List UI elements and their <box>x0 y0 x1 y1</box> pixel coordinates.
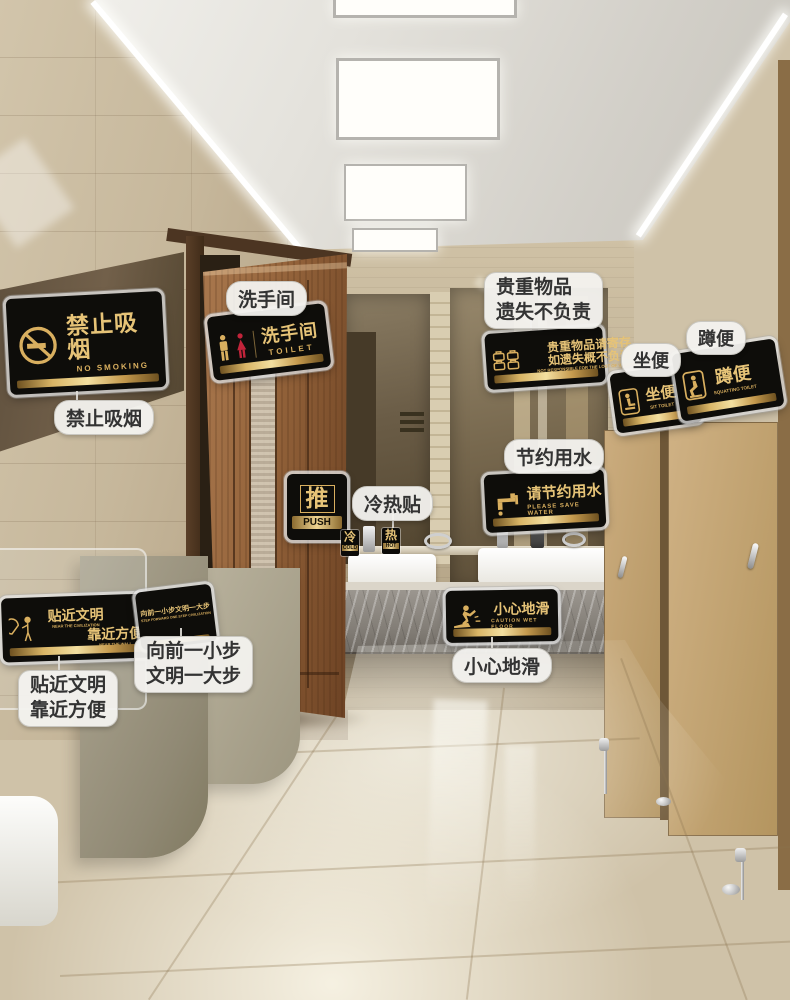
label-pin <box>58 656 60 671</box>
save-water-label: 节约用水 <box>504 439 604 474</box>
gold-stripe <box>10 644 144 657</box>
no-smoking-label: 禁止吸烟 <box>54 400 154 435</box>
hot-sticker: 热 HOT <box>382 528 400 554</box>
squat-toilet-label: 蹲便 <box>686 321 746 355</box>
valuables-label: 贵重物品 遗失不负责 <box>484 272 603 329</box>
cold-text: 冷 <box>344 530 356 545</box>
bidet-sprayer-head <box>735 848 746 862</box>
push-text-en: PUSH <box>292 516 342 529</box>
sit-toilet-text-en: SIT TOILET <box>650 402 675 410</box>
squat-toilet-icon <box>681 369 707 402</box>
push-text-cn: 推 <box>300 485 335 513</box>
civilization-label: 贴近文明 靠近方便 <box>18 670 118 727</box>
ceiling-light-panel <box>333 0 517 18</box>
urinal <box>0 796 58 926</box>
wood-edge-strip <box>778 60 790 890</box>
male-icon <box>216 333 232 361</box>
gold-stripe <box>453 627 551 637</box>
floor-light-reflection <box>505 745 535 905</box>
wet-floor-label: 小心地滑 <box>452 648 552 683</box>
no-smoking-text-en: NO SMOKING <box>76 361 149 374</box>
slip-warning-icon <box>452 603 484 630</box>
step-forward-label: 向前一小步 文明一大步 <box>134 636 253 693</box>
save-water-text-cn: 请节约用水 <box>526 483 602 503</box>
urinal-person-icon <box>9 614 42 645</box>
mirror-divider-column <box>430 292 450 564</box>
valuables-sign: 贵重物品请寄存 如遗失概不负责 NOT RESPONSIBLE FOR THE … <box>484 326 606 390</box>
bidet-sprayer-head <box>599 738 609 751</box>
gold-stripe <box>17 373 159 388</box>
hot-text: 热 <box>385 528 397 543</box>
toilet-label: 洗手间 <box>226 281 307 316</box>
sit-toilet-icon <box>617 387 641 418</box>
step-forward-label-line1: 向前一小步 <box>146 640 241 665</box>
sit-toilet-text-cn: 坐便 <box>645 384 677 404</box>
drain-ring <box>562 532 586 547</box>
floor-light-reflection <box>426 699 487 911</box>
bidet-sprayer <box>604 744 607 794</box>
no-smoking-icon <box>15 322 61 368</box>
floor-door-stop <box>656 797 671 806</box>
valuables-label-line2: 遗失不负责 <box>496 301 591 326</box>
bidet-sprayer <box>741 856 744 900</box>
step-forward-label-line2: 文明一大步 <box>146 665 241 690</box>
no-smoking-sign: 禁止吸烟 NO SMOKING <box>6 291 167 395</box>
wet-floor-sign: 小心地滑 CAUTION WET FLOOR <box>446 589 559 643</box>
restroom-scene: 禁止吸烟 NO SMOKING 禁止吸烟 洗手间 洗手间 TOILET 推 PU… <box>0 0 790 1000</box>
cold-sticker: 冷 COLD <box>341 530 359 556</box>
civilization-label-line2: 靠近方便 <box>30 699 106 724</box>
toilet-icons <box>216 330 257 361</box>
push-sign: 推 PUSH <box>287 474 347 540</box>
civilization-label-line1: 贴近文明 <box>30 674 106 699</box>
faucet-icon <box>491 489 520 516</box>
cold-text-en: COLD <box>342 545 358 551</box>
faucet <box>497 530 508 548</box>
wet-floor-text-cn: 小心地滑 <box>493 601 549 617</box>
civilization-text-line2: 靠近方便 <box>87 626 143 643</box>
female-icon <box>233 331 250 360</box>
mirror-slat <box>400 420 424 424</box>
drain-ring <box>424 533 452 549</box>
ceiling-light-panel <box>336 58 500 140</box>
mirror-left-panel <box>344 294 430 564</box>
ceiling-light-panel <box>352 228 438 252</box>
hot-text-en: HOT <box>383 543 399 549</box>
faucet <box>363 526 375 552</box>
mirror-slat <box>400 412 424 416</box>
mirror-slat <box>400 428 424 432</box>
ceiling-light-panel <box>344 164 467 221</box>
no-smoking-text-cn: 禁止吸烟 <box>65 309 156 362</box>
counter-top <box>338 582 622 590</box>
save-water-sign: 请节约用水 PLEASE SAVE WATER <box>484 469 607 533</box>
valuables-bags-icon <box>491 348 521 374</box>
valuables-label-line1: 贵重物品 <box>496 276 591 301</box>
sit-toilet-label: 坐便 <box>621 343 681 377</box>
civilization-sign: 贴近文明 NEAR THE CIVILIZATION 靠近方便 NEAR THE… <box>1 593 151 662</box>
floor-door-stop <box>722 884 740 895</box>
hot-cold-label: 冷热贴 <box>352 486 433 521</box>
sink-basin <box>478 548 610 584</box>
